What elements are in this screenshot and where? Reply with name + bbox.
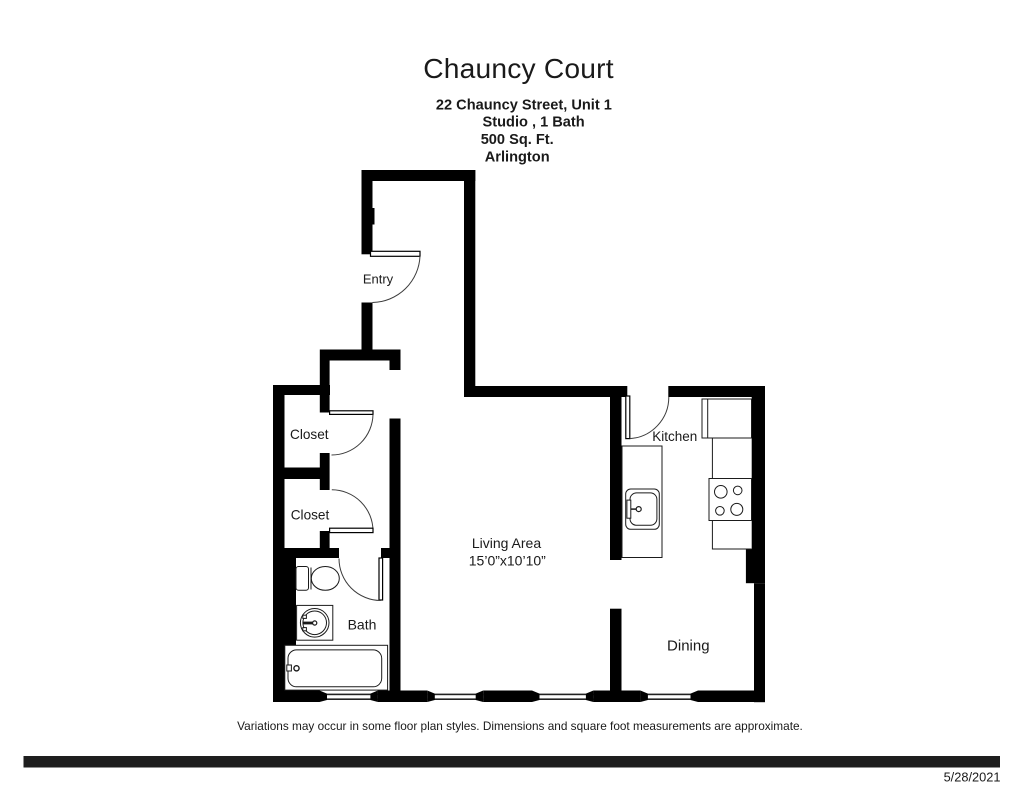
svg-text:Chauncy Court: Chauncy Court — [423, 52, 614, 84]
svg-text:5/28/2021: 5/28/2021 — [944, 770, 1001, 785]
svg-text:Closet: Closet — [291, 508, 330, 523]
svg-text:Bath: Bath — [348, 617, 377, 633]
svg-text:15’0”x10’10”: 15’0”x10’10” — [469, 552, 546, 568]
svg-text:Arlington: Arlington — [485, 149, 550, 165]
svg-text:Kitchen: Kitchen — [652, 429, 697, 444]
svg-text:Dining: Dining — [667, 638, 710, 655]
svg-text:Studio , 1 Bath: Studio , 1 Bath — [483, 114, 585, 130]
svg-text:Closet: Closet — [290, 427, 329, 442]
svg-text:Living Area: Living Area — [472, 535, 541, 551]
svg-text:22 Chauncy Street, Unit 1: 22 Chauncy Street, Unit 1 — [436, 97, 612, 113]
svg-text:Variations may occur in some f: Variations may occur in some floor plan … — [237, 719, 803, 733]
svg-text:Entry: Entry — [363, 272, 394, 287]
svg-text:500 Sq. Ft.: 500 Sq. Ft. — [481, 132, 554, 148]
